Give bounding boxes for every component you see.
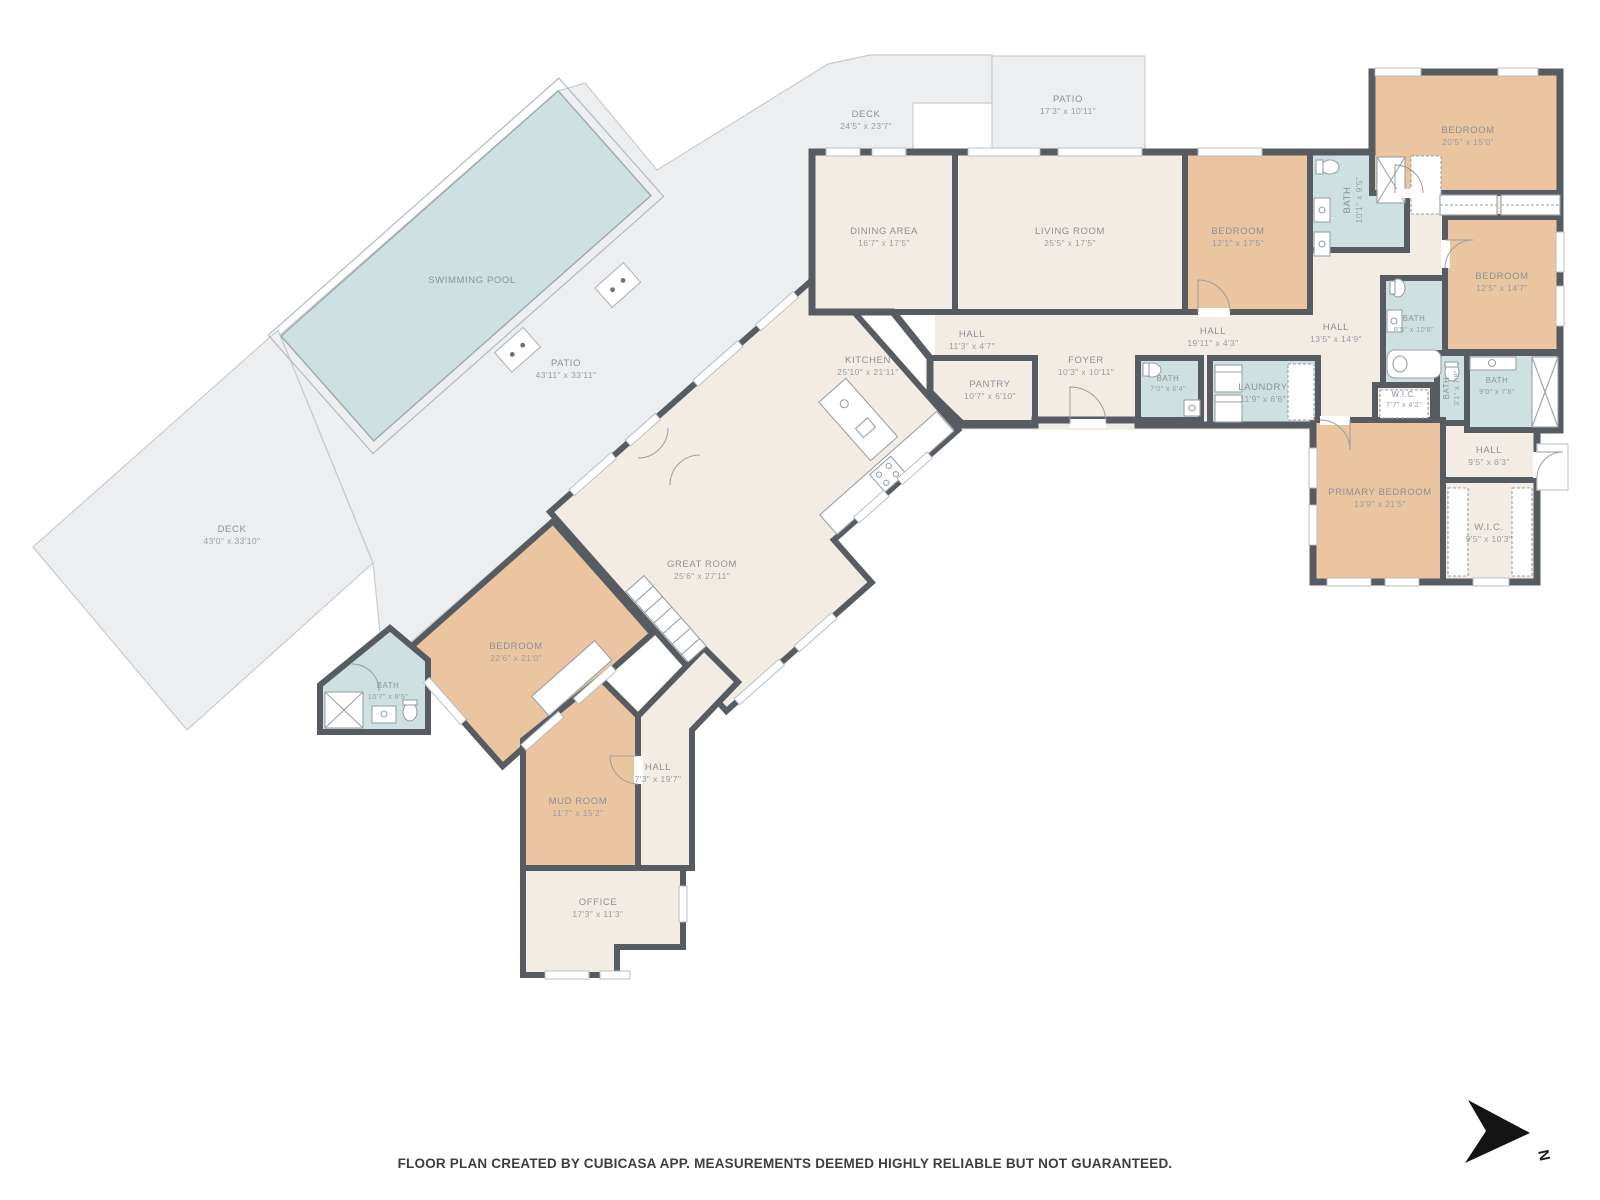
svg-text:10'1" x 9'5": 10'1" x 9'5" xyxy=(1354,177,1364,224)
svg-text:10'7" x 8'5": 10'7" x 8'5" xyxy=(368,692,408,701)
svg-text:BATH: BATH xyxy=(1442,377,1451,400)
svg-text:BEDROOM: BEDROOM xyxy=(1441,125,1494,136)
svg-text:BEDROOM: BEDROOM xyxy=(1475,271,1528,282)
north-arrow-icon xyxy=(1465,1100,1530,1163)
svg-text:LIVING ROOM: LIVING ROOM xyxy=(1035,226,1105,237)
svg-text:7'0" x 6'4": 7'0" x 6'4" xyxy=(1150,384,1186,393)
svg-text:HALL: HALL xyxy=(645,762,671,773)
svg-text:PATIO: PATIO xyxy=(551,358,581,369)
svg-text:11'3" x 4'7": 11'3" x 4'7" xyxy=(949,341,995,351)
svg-text:9'5" x 6'3": 9'5" x 6'3" xyxy=(1468,457,1510,467)
svg-text:FOYER: FOYER xyxy=(1068,355,1104,366)
north-indicator: N xyxy=(1465,1100,1553,1163)
svg-text:12'5" x 14'7": 12'5" x 14'7" xyxy=(1476,283,1528,293)
svg-text:BEDROOM: BEDROOM xyxy=(1211,226,1264,237)
svg-text:DINING AREA: DINING AREA xyxy=(850,226,918,237)
svg-text:25'6" x 27'11": 25'6" x 27'11" xyxy=(674,571,730,581)
svg-text:HALL: HALL xyxy=(1200,326,1226,337)
svg-text:10'7" x 6'10": 10'7" x 6'10" xyxy=(964,391,1016,401)
svg-text:17'3" x 10'11": 17'3" x 10'11" xyxy=(1040,106,1096,116)
floor-plan-canvas: SWIMMING POOL PATIO 43'11" x 33'11" DECK… xyxy=(0,0,1600,1200)
svg-text:19'11" x 4'3": 19'11" x 4'3" xyxy=(1187,338,1238,348)
svg-text:BATH: BATH xyxy=(1157,374,1180,383)
svg-text:13'9" x 21'5": 13'9" x 21'5" xyxy=(1354,499,1406,509)
svg-text:HALL: HALL xyxy=(1476,445,1502,456)
svg-text:7'7" x 4'2": 7'7" x 4'2" xyxy=(1386,400,1422,409)
svg-text:PRIMARY BEDROOM: PRIMARY BEDROOM xyxy=(1328,487,1432,498)
svg-text:25'5" x 17'5": 25'5" x 17'5" xyxy=(1044,238,1096,248)
svg-text:24'5" x 23'7": 24'5" x 23'7" xyxy=(840,121,892,131)
svg-text:20'5" x 15'0": 20'5" x 15'0" xyxy=(1442,137,1494,147)
svg-text:BATH: BATH xyxy=(1403,314,1426,323)
svg-text:3'1" x 7'8": 3'1" x 7'8" xyxy=(1452,370,1461,406)
north-label: N xyxy=(1534,1148,1553,1162)
svg-text:16'7" x 17'5": 16'7" x 17'5" xyxy=(858,238,910,248)
svg-text:13'5" x 14'9": 13'5" x 14'9" xyxy=(1310,334,1362,344)
svg-text:MUD ROOM: MUD ROOM xyxy=(549,796,608,807)
svg-text:BEDROOM: BEDROOM xyxy=(489,641,542,652)
svg-text:8'5" x 10'6": 8'5" x 10'6" xyxy=(1394,325,1434,334)
svg-text:LAUNDRY: LAUNDRY xyxy=(1238,382,1287,393)
floor-plan-page: SWIMMING POOL PATIO 43'11" x 33'11" DECK… xyxy=(0,0,1600,1200)
svg-text:22'6" x 21'0": 22'6" x 21'0" xyxy=(490,653,542,663)
svg-text:PANTRY: PANTRY xyxy=(969,379,1010,390)
svg-text:HALL: HALL xyxy=(959,329,985,340)
svg-text:17'3" x 11'3": 17'3" x 11'3" xyxy=(572,909,623,919)
svg-text:7'3" x 19'7": 7'3" x 19'7" xyxy=(635,774,682,784)
svg-text:11'7" x 15'2": 11'7" x 15'2" xyxy=(552,808,603,818)
svg-text:43'11" x 33'11": 43'11" x 33'11" xyxy=(536,370,597,380)
svg-text:25'10" x 21'11": 25'10" x 21'11" xyxy=(837,367,898,377)
svg-text:W.I.C.: W.I.C. xyxy=(1392,390,1417,399)
svg-text:HALL: HALL xyxy=(1323,322,1349,333)
svg-text:GREAT ROOM: GREAT ROOM xyxy=(667,559,737,570)
svg-text:BATH: BATH xyxy=(1342,186,1353,213)
svg-text:9'0" x 7'8": 9'0" x 7'8" xyxy=(1479,387,1515,396)
hall-7-3-area xyxy=(638,648,738,868)
svg-text:SWIMMING POOL: SWIMMING POOL xyxy=(428,275,516,286)
svg-text:BATH: BATH xyxy=(377,681,400,690)
svg-text:PATIO: PATIO xyxy=(1053,94,1083,105)
svg-text:BATH: BATH xyxy=(1486,376,1509,385)
svg-text:W.I.C.: W.I.C. xyxy=(1474,522,1503,533)
footer-disclaimer: FLOOR PLAN CREATED BY CUBICASA APP. MEAS… xyxy=(398,1156,1173,1171)
svg-text:10'3" x 10'11": 10'3" x 10'11" xyxy=(1058,367,1114,377)
svg-text:12'1" x 17'5": 12'1" x 17'5" xyxy=(1212,238,1264,248)
room-label-swimming-pool: SWIMMING POOL xyxy=(428,275,516,286)
svg-text:9'5" x 10'3": 9'5" x 10'3" xyxy=(1466,534,1513,544)
svg-text:KITCHEN: KITCHEN xyxy=(845,355,891,366)
svg-text:DECK: DECK xyxy=(852,109,881,120)
svg-text:43'0" x 33'10": 43'0" x 33'10" xyxy=(204,536,261,546)
svg-text:DECK: DECK xyxy=(218,524,247,535)
svg-text:OFFICE: OFFICE xyxy=(579,897,617,908)
office-area xyxy=(523,868,683,975)
svg-text:11'9" x 6'6": 11'9" x 6'6" xyxy=(1240,394,1286,404)
